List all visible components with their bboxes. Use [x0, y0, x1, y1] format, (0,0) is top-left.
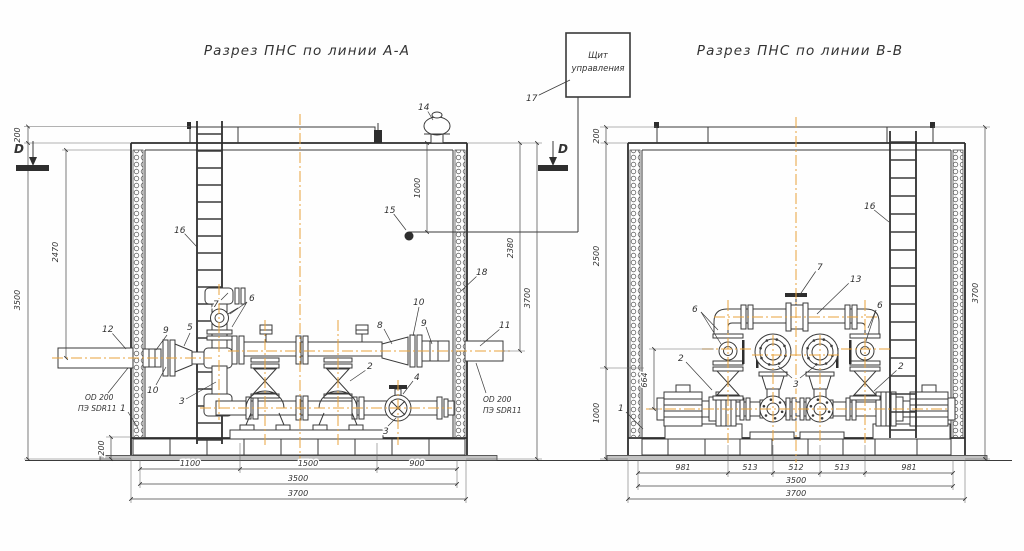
item-label-10a: 10: [147, 386, 159, 396]
wall-insulation-left: [630, 150, 640, 438]
roof-hatch-right: [657, 127, 933, 143]
dim-bay1-left: 1100: [180, 459, 200, 468]
item-label-3: 3: [793, 380, 799, 390]
section-marker-d-right: D: [538, 141, 568, 171]
item-label-3b: 3: [383, 427, 389, 437]
dim-valve-axis: 664: [640, 372, 649, 387]
discharge-manifold: [240, 342, 382, 356]
title-section-aa: Разрез ПНС по линии А-А: [204, 43, 410, 59]
dim-base-height: 200: [97, 440, 106, 455]
item-label-6a: 6: [692, 305, 698, 315]
dim-bay3-right: 512: [788, 463, 803, 472]
item-label-7: 7: [213, 300, 219, 310]
item-label-16: 16: [864, 202, 876, 212]
pipe-spec-outlet-line2: ПЭ SDR11: [483, 406, 522, 415]
pipe-spec-outlet-line1: OD 200: [483, 395, 512, 404]
item-label-9b: 9: [421, 319, 427, 329]
dim-bay2-left: 1500: [298, 459, 318, 468]
foundation-blocks-left: [133, 439, 465, 455]
drawing-sheet: Разрез ПНС по линии А-А Разрез ПНС по ли…: [0, 0, 1024, 551]
left-section-view: 200 3500 2470 200 1000 2380 3700 1100 15…: [13, 97, 578, 503]
control-panel-label-line2: управления: [570, 64, 624, 74]
dim-inlet-drop: 2470: [51, 242, 60, 262]
pump-pedestal: [230, 430, 383, 439]
title-section-bb: Разрез ПНС по линии В-В: [697, 43, 903, 59]
item-label-12: 12: [102, 325, 114, 335]
item-label-13: 13: [850, 275, 862, 285]
pipe-spec-inlet-line2: ПЭ SDR11: [78, 404, 117, 413]
item-label-15: 15: [384, 206, 396, 216]
item-label-5: 5: [187, 323, 193, 333]
roof-hatch-left: [190, 127, 375, 143]
section-marker-letter: D: [14, 142, 24, 156]
dim-bay2-right: 513: [742, 463, 757, 472]
dim-width-inner-right: 3500: [786, 476, 806, 485]
dim-total-height-left: 3700: [523, 288, 532, 308]
item-label-6b: 6: [877, 301, 883, 311]
dim-roof-height-right: 200: [592, 128, 601, 143]
dim-total-height-right: 3700: [971, 283, 980, 303]
control-panel: Щит управления 17: [526, 33, 630, 104]
pressure-gauge: [260, 325, 368, 342]
pipe-spec-inlet-line1: OD 200: [85, 393, 114, 402]
item-label-1: 1: [618, 404, 624, 414]
ground: [25, 456, 1012, 461]
valve-column-left: [713, 334, 759, 400]
vent-cap: [424, 112, 450, 143]
item-label-4: 4: [414, 373, 420, 383]
item-label-11: 11: [499, 321, 510, 331]
dim-bay4-right: 513: [834, 463, 849, 472]
item-label-17: 17: [526, 94, 538, 104]
wall-insulation-right: [953, 150, 963, 438]
hatch-lip: [187, 122, 191, 129]
item-label-2b: 2: [898, 362, 904, 372]
item-labels-left: 1 2 3 3 4 5 6 7 8 9 9 10 10 11 12 14 15 …: [102, 103, 510, 437]
piping-right: [657, 293, 955, 439]
item-label-14: 14: [418, 103, 430, 113]
wall-insulation-left: [133, 150, 143, 438]
base-plate-right: [607, 456, 987, 461]
dim-width-outer-left: 3700: [288, 489, 308, 498]
item-label-2a: 2: [678, 354, 684, 364]
pipe-spec-outlet: OD 200 ПЭ SDR11: [476, 363, 522, 415]
dim-width-inner-left: 3500: [288, 474, 308, 483]
item-label-3a: 3: [179, 397, 185, 407]
control-panel-label-line1: Щит: [588, 51, 609, 61]
item-label-1: 1: [120, 404, 126, 414]
item-label-16: 16: [174, 226, 186, 236]
roof-gland: [374, 130, 382, 143]
valve-column-right: [836, 334, 880, 400]
wall-insulation-right: [455, 150, 465, 438]
dim-roof-height-left: 200: [13, 127, 22, 142]
dim-wall-height-left: 3500: [13, 290, 22, 310]
dim-outlet-drop: 2380: [506, 238, 515, 258]
dim-bay3-left: 900: [409, 459, 424, 468]
section-marker-d-left: D: [14, 141, 49, 171]
dim-lower-height: 1000: [592, 403, 601, 423]
dim-width-outer-right: 3700: [786, 489, 806, 498]
right-section-view: 200 2500 1000 664 3700 981 513 512 513 9…: [592, 117, 990, 503]
section-marker-letter: D: [558, 142, 568, 156]
item-label-10b: 10: [413, 298, 425, 308]
item-label-6: 6: [249, 294, 255, 304]
pns-section-drawing: Разрез ПНС по линии А-А Разрез ПНС по ли…: [0, 0, 1024, 551]
dim-bay5-right: 981: [901, 463, 916, 472]
dim-upper-height: 2500: [592, 246, 601, 266]
item-label-8: 8: [377, 321, 383, 331]
piping-left: [58, 288, 503, 439]
item-label-7: 7: [817, 263, 823, 273]
item-label-2: 2: [367, 362, 373, 372]
dim-sensor-drop: 1000: [413, 178, 422, 198]
item-label-18: 18: [476, 268, 488, 278]
item-label-9a: 9: [163, 326, 169, 336]
dim-bay1-right: 981: [675, 463, 690, 472]
